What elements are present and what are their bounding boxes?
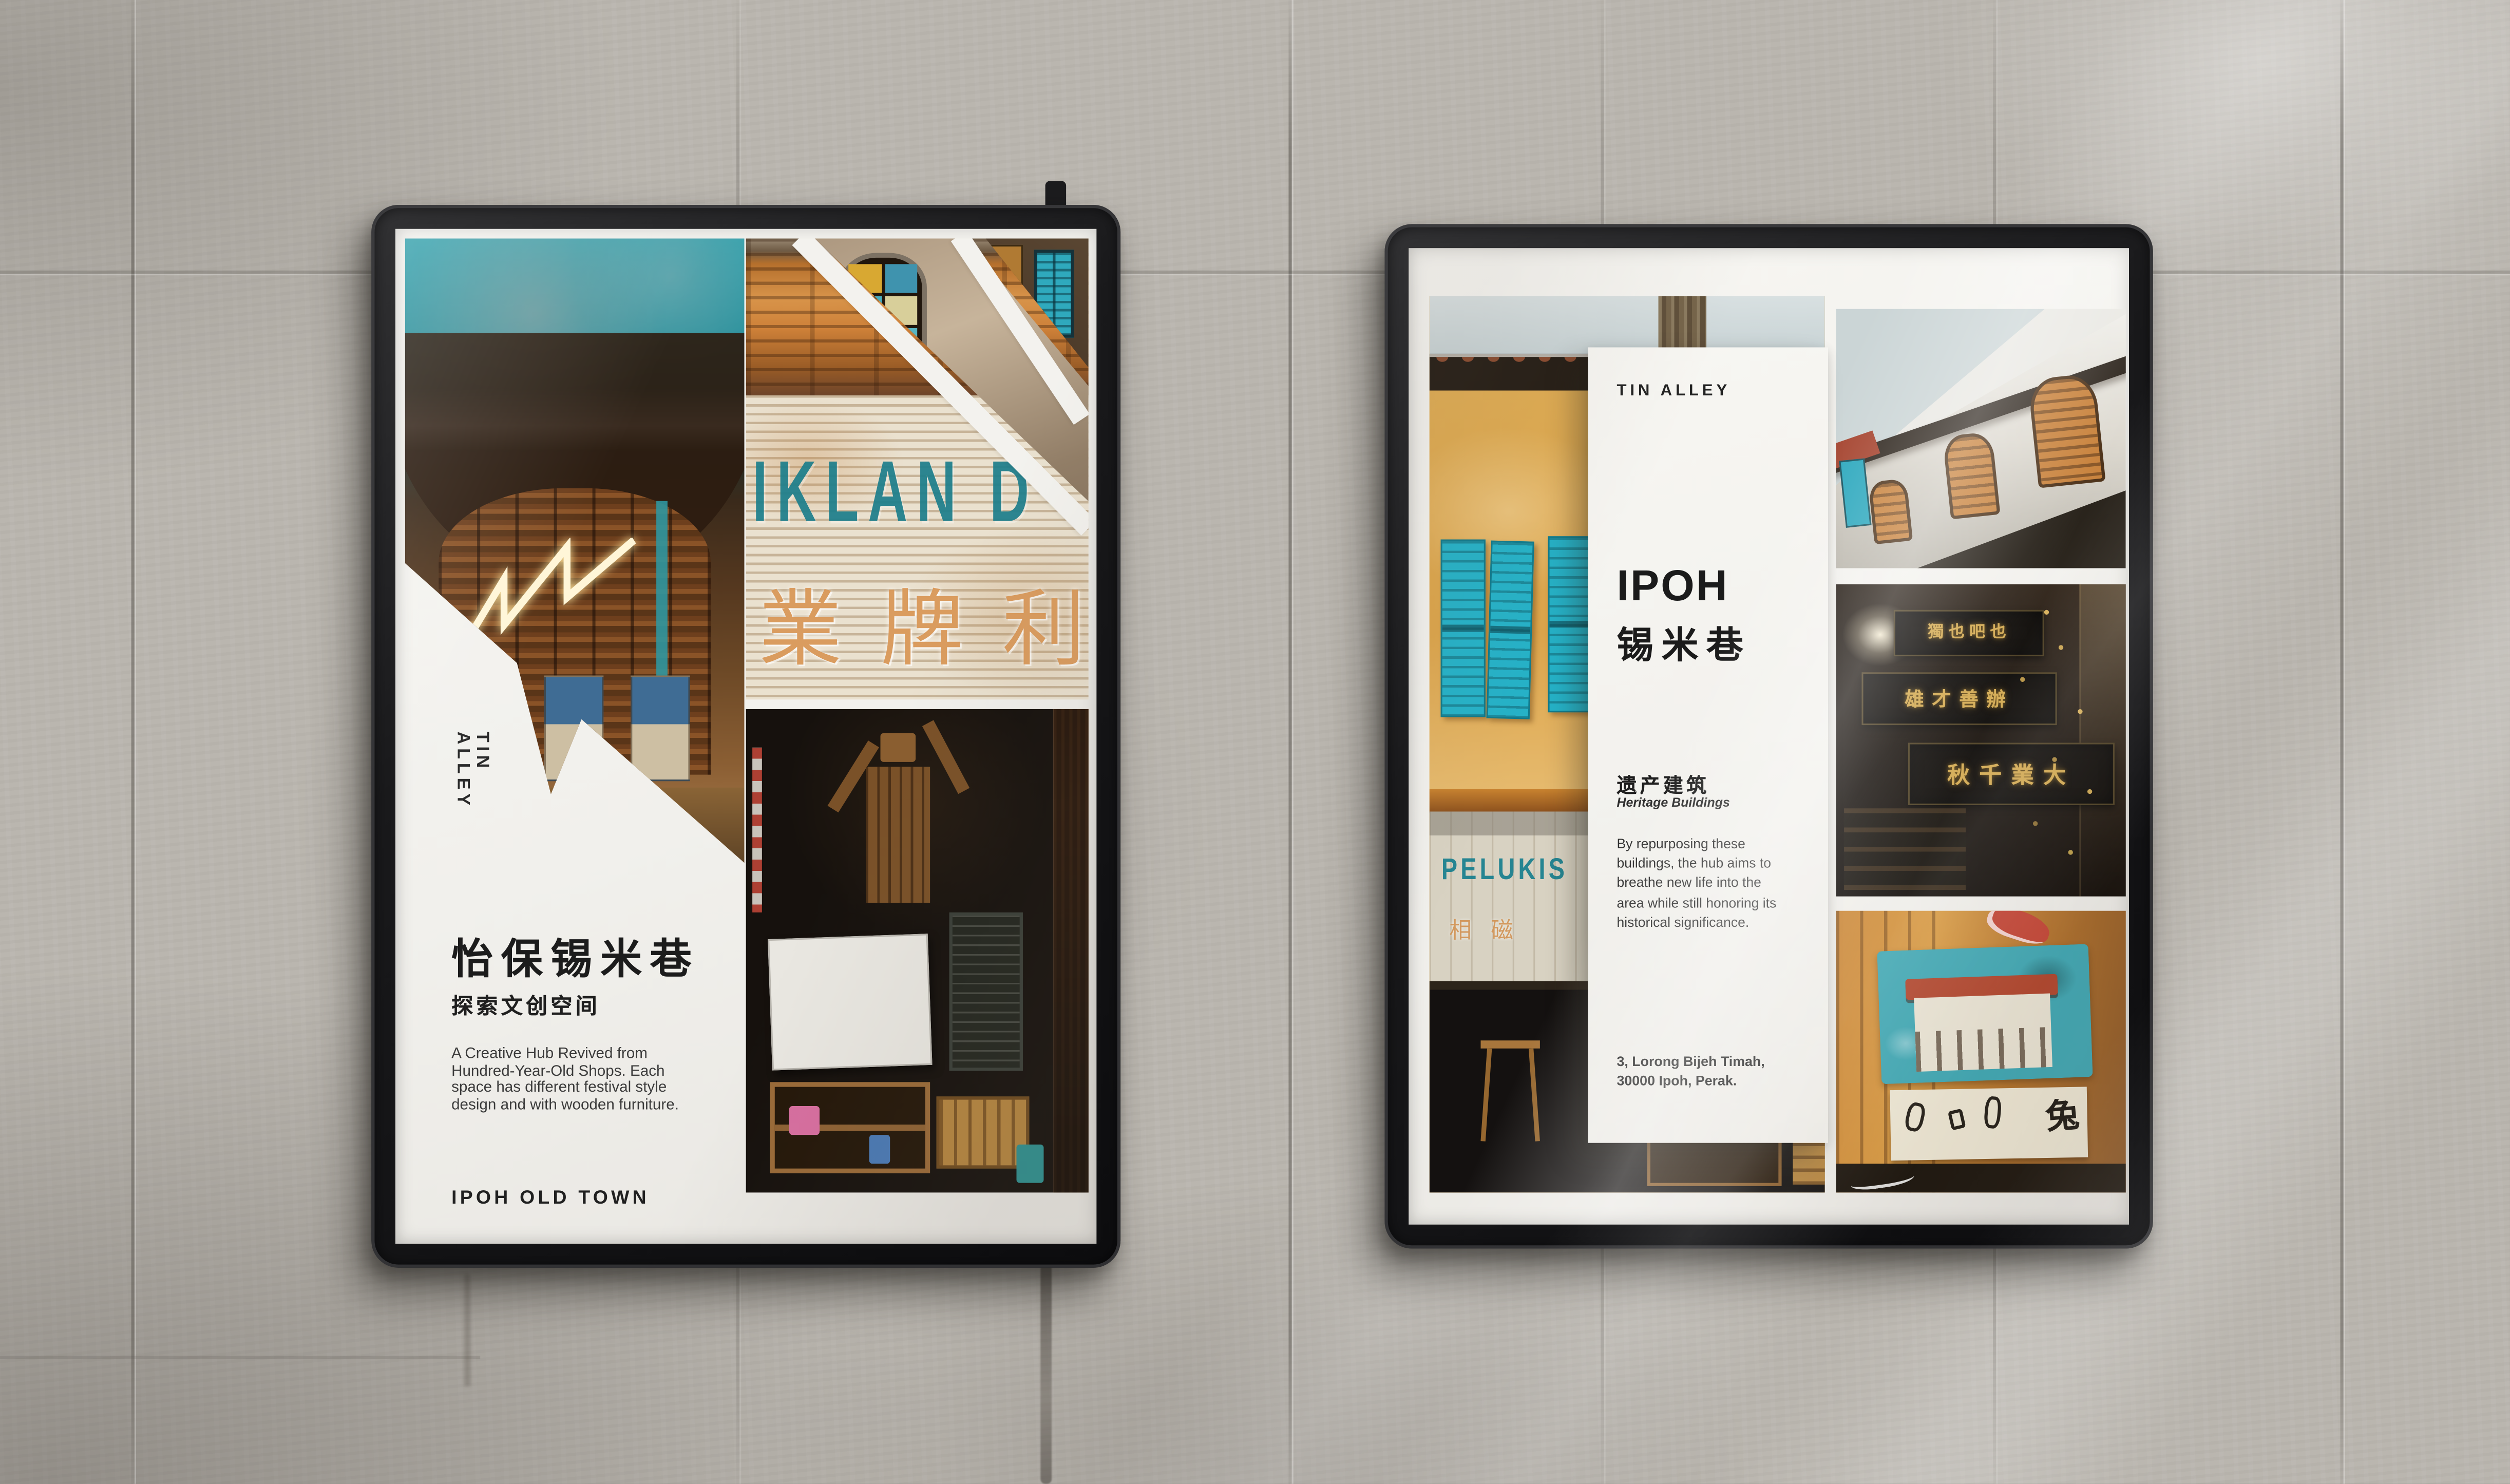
- right-poster-page: PELUKIS 相磁: [1409, 248, 2129, 1225]
- whiteboard: [768, 934, 933, 1070]
- photo-shophouse-mural: 兔: [1836, 911, 2126, 1193]
- wall-crack: [0, 1356, 480, 1359]
- tile-grout-line: [2340, 0, 2343, 1483]
- blue-door: [544, 676, 603, 782]
- photo-rusty-shutter-rail: [1053, 709, 1089, 1192]
- text-column: TIN ALLEY IPOH 锡米巷 遗产建筑 Heritage Buildin…: [1588, 347, 1828, 1143]
- teal-cloth: [1016, 1144, 1044, 1183]
- photo-gold-signboard-alley: 獨也吧也 雄才善辦 秋千業大: [1836, 584, 2126, 897]
- poster-body-text: By repurposing these buildings, the hub …: [1617, 834, 1790, 931]
- pelukis-sign-chinese: 相磁: [1449, 914, 1532, 945]
- address-text: 3, Lorong Bijeh Timah, 30000 Ipoh, Perak…: [1617, 1053, 1764, 1090]
- teal-shutter-leaf: [1548, 536, 1592, 713]
- wall-drip-stain: [1040, 1265, 1052, 1484]
- orange-arched-shutter: [1868, 478, 1912, 544]
- mural-character: 兔: [2044, 1089, 2082, 1139]
- wall-stain: [464, 1274, 470, 1386]
- poster-body-text: A Creative Hub Revived from Hundred-Year…: [451, 1047, 695, 1115]
- section-heading-english: Heritage Buildings: [1617, 795, 1729, 810]
- poster-footer-label: IPOH OLD TOWN: [451, 1186, 650, 1209]
- iklan-sign-chinese: 業牌利: [746, 561, 1089, 681]
- address-line-1: 3, Lorong Bijeh Timah,: [1617, 1053, 1764, 1072]
- poster-title-latin: IPOH: [1617, 562, 1728, 612]
- wooden-stool: [1481, 1041, 1540, 1062]
- teal-shutter-leaf: [1487, 541, 1535, 720]
- seated-person: [564, 757, 595, 807]
- right-poster-frame: PELUKIS 相磁: [1384, 224, 2153, 1248]
- shop-shelving: [1845, 809, 1966, 890]
- left-poster-page: IKLAN D 業牌利: [395, 229, 1096, 1244]
- wooden-crate: [937, 1096, 1029, 1168]
- teal-shutter-leaf: [1441, 540, 1485, 717]
- wooden-robot-body: [866, 767, 930, 903]
- poster-subtitle-chinese: 探索文创空间: [451, 987, 600, 1019]
- gold-signboard: 獨也吧也: [1894, 609, 2044, 656]
- address-line-2: 30000 Ipoh, Perak.: [1617, 1072, 1764, 1090]
- calligraphy-sign: 兔: [1891, 1087, 2089, 1160]
- photo-shopfront-wooden-robot: [746, 709, 1054, 1192]
- alley-side-wall: [2080, 584, 2126, 897]
- pink-box: [789, 1106, 820, 1134]
- photo-angled-shophouse-row: [1836, 309, 2126, 568]
- dark-base-band: [1836, 1165, 2126, 1193]
- teal-mural-panel: [1877, 944, 2094, 1083]
- poster-title-chinese: 锡米巷: [1617, 615, 1751, 669]
- gold-signboard: 秋千業大: [1909, 744, 2115, 806]
- striped-pole: [752, 748, 762, 912]
- wooden-robot-head: [881, 733, 915, 762]
- gold-signboard: 雄才善辦: [1862, 672, 2056, 725]
- red-koi-painting: [1984, 911, 2053, 948]
- section-heading-chinese: 遗产建筑: [1617, 768, 1709, 798]
- poster-title-chinese: 怡保锡米巷: [451, 927, 699, 986]
- blue-box: [869, 1134, 890, 1163]
- poster-mockup-scene: IKLAN D 業牌利: [0, 0, 2510, 1483]
- photo-iklan-shophouse-shutter: IKLAN D 業牌利: [746, 238, 1089, 699]
- tile-grout-line: [1288, 0, 1291, 1483]
- mural-shophouse: [1915, 993, 2052, 1071]
- frame-hanging-tab: [1045, 181, 1067, 208]
- chalkboard: [949, 912, 1023, 1072]
- blue-door: [632, 676, 691, 782]
- vertical-brand-label: TIN ALLEY: [453, 732, 491, 852]
- left-poster-frame: IKLAN D 業牌利: [371, 205, 1120, 1268]
- brand-label: TIN ALLEY: [1617, 383, 1731, 400]
- gold-speckles: [2045, 609, 2049, 614]
- tile-grout-line: [131, 0, 135, 1483]
- neon-zigzag-light: [446, 538, 642, 675]
